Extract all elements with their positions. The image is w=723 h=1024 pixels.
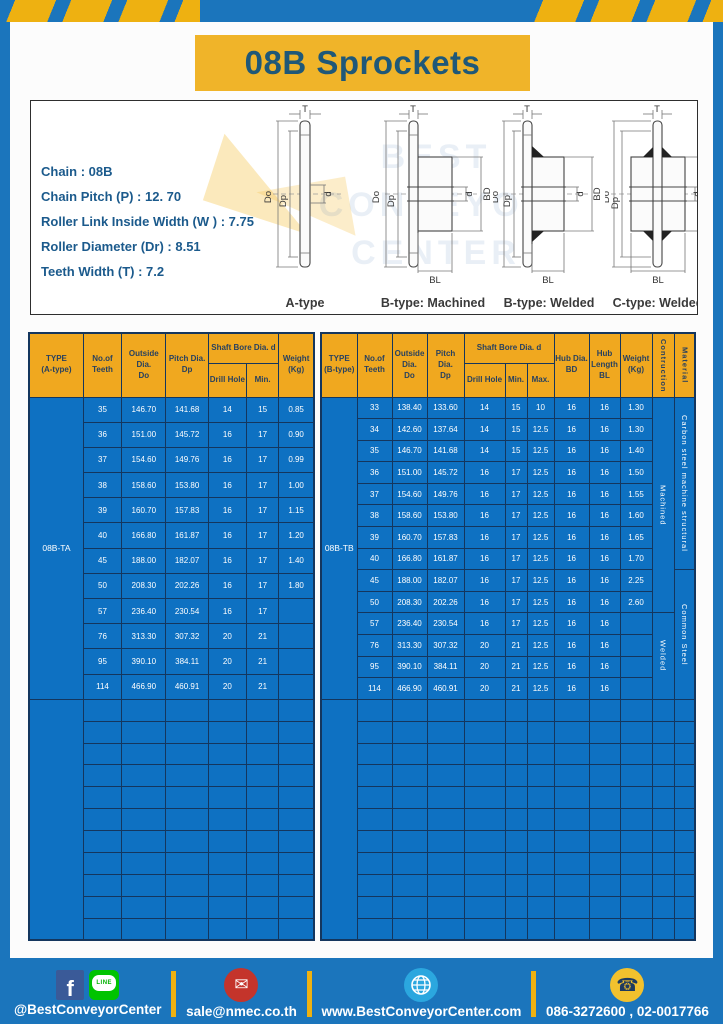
table-cell: 16: [208, 523, 246, 548]
table-cell: [464, 765, 505, 787]
spec-line-pitch: Chain Pitch (P) : 12. 70: [41, 184, 254, 209]
table-cell: 16: [464, 613, 505, 635]
svg-text:BD: BD: [482, 187, 493, 200]
table-cell: [620, 853, 652, 875]
table-cell: 17: [246, 422, 278, 447]
table-cell: 17: [246, 548, 278, 573]
table-cell: [554, 918, 589, 940]
email-icon: ✉: [224, 968, 258, 1002]
table-cell: [166, 831, 208, 853]
table-cell: 236.40: [392, 613, 427, 635]
col-header-type-a: TYPE (A-type): [29, 333, 83, 397]
table-cell: 17: [505, 527, 527, 549]
svg-text:Dp: Dp: [502, 195, 513, 207]
table-cell: 17: [246, 523, 278, 548]
table-cell: 16: [464, 483, 505, 505]
table-cell: 16: [464, 505, 505, 527]
table-cell: [208, 852, 246, 874]
table-row: 34142.60137.64141512.516161.30: [321, 419, 695, 441]
table-cell: [427, 831, 464, 853]
table-cell: 20: [208, 674, 246, 699]
table-cell: [122, 874, 166, 896]
col-header-drill-hole: Drill Hole: [208, 363, 246, 397]
table-cell: 16: [554, 591, 589, 613]
table-cell: 40: [357, 548, 392, 570]
col-header-material: Material: [674, 333, 695, 397]
table-cell: 16: [554, 570, 589, 592]
table-cell: [392, 721, 427, 743]
table-cell: [122, 721, 166, 743]
table-cell: [122, 918, 166, 940]
sprocket-b-machined-drawing: T Do Dp d BD BL: [369, 105, 497, 287]
empty-row: [321, 918, 695, 940]
table-cell: [427, 699, 464, 721]
table-cell: [427, 918, 464, 940]
table-cell: [464, 721, 505, 743]
construction-cell: Welded: [652, 613, 674, 699]
table-cell: [166, 852, 208, 874]
table-cell: [527, 874, 554, 896]
table-cell: 33: [357, 397, 392, 419]
table-cell: [279, 699, 314, 721]
col-header-drill-hole: Drill Hole: [464, 363, 505, 397]
col-header-construction: Contruction: [652, 333, 674, 397]
table-cell: [246, 874, 278, 896]
table-cell: [554, 787, 589, 809]
table-cell: [246, 809, 278, 831]
sprocket-c-welded-drawing: T Do Dp d BD BL: [605, 105, 698, 287]
table-cell: 141.68: [427, 440, 464, 462]
table-cell: 57: [83, 599, 121, 624]
table-cell: 160.70: [392, 527, 427, 549]
globe-icon: [404, 968, 438, 1002]
table-cell: 158.60: [122, 473, 166, 498]
svg-text:BL: BL: [429, 275, 441, 286]
content-panel: 08B Sprockets BEST CONVEYOR CENTER Chain…: [10, 22, 713, 958]
table-cell: [554, 809, 589, 831]
table-cell: [392, 874, 427, 896]
table-cell: [208, 765, 246, 787]
spec-line-roller-dia: Roller Diameter (Dr) : 8.51: [41, 234, 254, 259]
table-row: 114466.90460.91202112.51616: [321, 678, 695, 700]
diagram-caption-a: A-type: [253, 296, 357, 310]
table-type-cell: [321, 699, 357, 940]
table-cell: 0.90: [279, 422, 314, 447]
table-cell: [652, 896, 674, 918]
table-cell: 151.00: [392, 462, 427, 484]
table-cell: [208, 699, 246, 721]
table-cell: 14: [464, 440, 505, 462]
table-cell: 12.5: [527, 656, 554, 678]
table-cell: [83, 721, 121, 743]
table-cell: [464, 787, 505, 809]
table-cell: 16: [208, 422, 246, 447]
table-cell: [652, 699, 674, 721]
table-cell: 1.00: [279, 473, 314, 498]
empty-row: [321, 765, 695, 787]
table-cell: 16: [554, 678, 589, 700]
table-cell: 12.5: [527, 635, 554, 657]
svg-text:d: d: [464, 191, 475, 196]
sprocket-table-a: TYPE (A-type) No.of Teeth Outside Dia. D…: [28, 332, 315, 941]
table-cell: 21: [505, 656, 527, 678]
table-cell: 16: [208, 599, 246, 624]
table-row: 36151.00145.72161712.516161.50: [321, 462, 695, 484]
table-row: 50208.30202.26161712.516162.60: [321, 591, 695, 613]
table-cell: [279, 809, 314, 831]
footer-divider: [531, 971, 536, 1017]
table-cell: [208, 743, 246, 765]
table-cell: 157.83: [166, 498, 208, 523]
table-cell: [620, 831, 652, 853]
table-cell: [620, 613, 652, 635]
table-cell: 17: [505, 548, 527, 570]
table-cell: 20: [464, 635, 505, 657]
table-cell: [208, 918, 246, 940]
table-cell: [620, 787, 652, 809]
table-cell: 182.07: [427, 570, 464, 592]
table-cell: [620, 656, 652, 678]
svg-text:d: d: [323, 191, 334, 196]
table-cell: 10: [527, 397, 554, 419]
svg-text:Do: Do: [371, 191, 382, 203]
table-cell: [246, 721, 278, 743]
title-banner: 08B Sprockets: [195, 35, 530, 91]
table-cell: 149.76: [166, 447, 208, 472]
table-cell: [122, 809, 166, 831]
spec-line-chain: Chain : 08B: [41, 159, 254, 184]
table-row: 57236.40230.54161712.51616Welded: [321, 613, 695, 635]
table-cell: [527, 743, 554, 765]
table-cell: [505, 787, 527, 809]
table-cell: 208.30: [122, 573, 166, 598]
table-cell: 21: [246, 674, 278, 699]
table-cell: 146.70: [392, 440, 427, 462]
table-cell: 21: [246, 649, 278, 674]
table-cell: [166, 699, 208, 721]
table-cell: 1.30: [620, 397, 652, 419]
table-cell: [674, 765, 695, 787]
table-cell: 45: [83, 548, 121, 573]
table-cell: [527, 721, 554, 743]
table-cell: 307.32: [427, 635, 464, 657]
table-cell: [392, 765, 427, 787]
col-header-weight: Weight (Kg): [279, 333, 314, 397]
table-cell: 15: [505, 419, 527, 441]
table-cell: 20: [208, 624, 246, 649]
svg-text:Do: Do: [263, 191, 274, 203]
table-cell: [357, 699, 392, 721]
col-header-max: Max.: [527, 363, 554, 397]
table-cell: [505, 699, 527, 721]
table-cell: [246, 699, 278, 721]
table-cell: 14: [464, 419, 505, 441]
table-cell: 16: [554, 548, 589, 570]
table-cell: [208, 787, 246, 809]
table-cell: 15: [505, 397, 527, 419]
footer-website-text: www.BestConveyorCenter.com: [322, 1004, 522, 1019]
table-cell: [620, 809, 652, 831]
footer-divider: [171, 971, 176, 1017]
empty-row: [321, 874, 695, 896]
table-cell: [554, 896, 589, 918]
table-cell: 142.60: [392, 419, 427, 441]
empty-row: [321, 809, 695, 831]
footer-social-handle: @BestConveyorCenter: [14, 1002, 161, 1017]
table-cell: [122, 852, 166, 874]
table-cell: [527, 853, 554, 875]
footer-phone-text: 086-3272600 , 02-0017766: [546, 1004, 709, 1019]
svg-text:BD: BD: [592, 187, 603, 200]
table-cell: [554, 699, 589, 721]
table-cell: 313.30: [392, 635, 427, 657]
table-cell: [674, 874, 695, 896]
table-cell: [554, 874, 589, 896]
table-cell: [279, 896, 314, 918]
table-cell: [464, 874, 505, 896]
table-cell: [83, 918, 121, 940]
table-cell: [279, 852, 314, 874]
table-cell: [166, 809, 208, 831]
table-cell: [464, 896, 505, 918]
material-cell: Common Steel: [674, 570, 695, 700]
table-cell: 12.5: [527, 440, 554, 462]
table-cell: 0.85: [279, 397, 314, 422]
table-cell: 12.5: [527, 462, 554, 484]
table-cell: [208, 721, 246, 743]
table-cell: [279, 721, 314, 743]
table-cell: [620, 635, 652, 657]
table-cell: 390.10: [122, 649, 166, 674]
empty-row: [321, 787, 695, 809]
table-row: 40166.80161.87161712.516161.70: [321, 548, 695, 570]
spec-line-roller-width: Roller Link Inside Width (W ) : 7.75: [41, 209, 254, 234]
table-cell: [620, 896, 652, 918]
table-cell: [652, 918, 674, 940]
table-cell: [620, 874, 652, 896]
table-cell: [83, 852, 121, 874]
table-cell: 16: [208, 498, 246, 523]
table-cell: [392, 743, 427, 765]
table-cell: 17: [246, 599, 278, 624]
table-cell: [652, 765, 674, 787]
table-cell: [620, 743, 652, 765]
empty-row: [321, 743, 695, 765]
table-cell: [505, 853, 527, 875]
table-cell: [246, 765, 278, 787]
col-header-outside-dia: Outside Dia. Do: [122, 333, 166, 397]
table-cell: 16: [554, 656, 589, 678]
svg-text:BL: BL: [542, 275, 554, 286]
col-header-type-b: TYPE (B-type): [321, 333, 357, 397]
table-cell: 16: [589, 635, 620, 657]
table-cell: [122, 765, 166, 787]
table-cell: 161.87: [166, 523, 208, 548]
chain-spec-block: Chain : 08B Chain Pitch (P) : 12. 70 Rol…: [41, 159, 254, 284]
table-cell: [166, 874, 208, 896]
table-cell: [427, 765, 464, 787]
table-cell: 466.90: [392, 678, 427, 700]
table-cell: [357, 765, 392, 787]
table-cell: [427, 809, 464, 831]
empty-row: [321, 721, 695, 743]
table-cell: 154.60: [392, 483, 427, 505]
table-cell: [652, 809, 674, 831]
table-cell: 16: [554, 613, 589, 635]
table-cell: [122, 699, 166, 721]
table-cell: 2.25: [620, 570, 652, 592]
diagram-caption-b-machined: B-type: Machined: [369, 296, 497, 310]
table-cell: 16: [208, 573, 246, 598]
table-row: 37154.60149.76161712.516161.55: [321, 483, 695, 505]
facebook-icon: f: [56, 970, 84, 1000]
svg-text:Dp: Dp: [610, 197, 621, 209]
table-cell: [674, 918, 695, 940]
table-cell: 16: [554, 635, 589, 657]
col-header-min: Min.: [505, 363, 527, 397]
diagram-b-welded: T Do Dp d BD BL B-type: Welded: [493, 105, 605, 312]
table-cell: [505, 743, 527, 765]
table-cell: 16: [589, 570, 620, 592]
table-row: 08B-TB33138.40133.6014151016161.30Machin…: [321, 397, 695, 419]
footer-website: www.BestConveyorCenter.com: [322, 968, 522, 1019]
table-cell: [427, 853, 464, 875]
table-cell: 17: [505, 505, 527, 527]
table-cell: [554, 765, 589, 787]
table-cell: [83, 765, 121, 787]
footer-divider: [307, 971, 312, 1017]
table-cell: 40: [83, 523, 121, 548]
table-cell: 76: [83, 624, 121, 649]
table-row: 38158.60153.80161712.516161.60: [321, 505, 695, 527]
table-cell: 1.40: [620, 440, 652, 462]
table-cell: [246, 743, 278, 765]
table-row: 95390.10384.11202112.51616: [321, 656, 695, 678]
table-cell: 1.30: [620, 419, 652, 441]
table-cell: [83, 809, 121, 831]
empty-row: [321, 699, 695, 721]
table-cell: 16: [554, 505, 589, 527]
table-cell: 1.60: [620, 505, 652, 527]
table-cell: 12.5: [527, 591, 554, 613]
table-cell: [392, 853, 427, 875]
empty-row: [321, 853, 695, 875]
col-header-pitch-dia: Pitch Dia. Dp: [166, 333, 208, 397]
table-cell: 17: [246, 573, 278, 598]
table-cell: [166, 743, 208, 765]
table-cell: [464, 809, 505, 831]
table-cell: 21: [246, 624, 278, 649]
table-cell: 460.91: [427, 678, 464, 700]
table-cell: 1.70: [620, 548, 652, 570]
table-cell: 188.00: [392, 570, 427, 592]
table-cell: 16: [464, 548, 505, 570]
table-cell: 20: [464, 678, 505, 700]
table-type-cell: 08B-TB: [321, 397, 357, 699]
table-cell: 153.80: [166, 473, 208, 498]
table-cell: 36: [83, 422, 121, 447]
table-cell: [279, 743, 314, 765]
table-cell: [427, 787, 464, 809]
table-cell: 160.70: [122, 498, 166, 523]
svg-text:d: d: [692, 191, 698, 196]
table-cell: 16: [554, 483, 589, 505]
table-cell: 17: [505, 591, 527, 613]
table-cell: [464, 699, 505, 721]
table-cell: 16: [589, 462, 620, 484]
table-cell: [166, 896, 208, 918]
svg-text:d: d: [575, 191, 586, 196]
table-cell: [246, 787, 278, 809]
table-cell: 182.07: [166, 548, 208, 573]
col-header-shaft-bore: Shaft Bore Dia. d: [208, 333, 279, 363]
table-cell: 0.99: [279, 447, 314, 472]
table-cell: 12.5: [527, 548, 554, 570]
table-cell: 38: [83, 473, 121, 498]
sprocket-table-b: TYPE (B-type) No.of Teeth Outside Dia. D…: [320, 332, 696, 941]
table-cell: [589, 699, 620, 721]
table-cell: 12.5: [527, 527, 554, 549]
table-cell: 38: [357, 505, 392, 527]
table-cell: [427, 721, 464, 743]
table-cell: [527, 787, 554, 809]
table-cell: 16: [464, 462, 505, 484]
table-cell: 146.70: [122, 397, 166, 422]
table-cell: [392, 809, 427, 831]
table-cell: [392, 918, 427, 940]
table-cell: 21: [505, 678, 527, 700]
table-cell: 16: [464, 591, 505, 613]
table-cell: [652, 831, 674, 853]
footer-email-text: sale@nmec.co.th: [186, 1004, 297, 1019]
table-cell: [357, 896, 392, 918]
table-cell: 390.10: [392, 656, 427, 678]
table-cell: 1.55: [620, 483, 652, 505]
table-cell: [674, 699, 695, 721]
table-cell: 17: [505, 483, 527, 505]
hazard-stripe-left: [0, 0, 200, 22]
table-cell: 12.5: [527, 570, 554, 592]
table-cell: [83, 787, 121, 809]
table-cell: 16: [589, 678, 620, 700]
table-cell: [464, 743, 505, 765]
table-cell: [674, 853, 695, 875]
table-cell: [652, 787, 674, 809]
col-header-teeth: No.of Teeth: [83, 333, 121, 397]
table-cell: 76: [357, 635, 392, 657]
table-cell: 36: [357, 462, 392, 484]
svg-text:Dp: Dp: [386, 195, 397, 207]
table-cell: 114: [83, 674, 121, 699]
table-b-body: 08B-TB33138.40133.6014151016161.30Machin…: [321, 397, 695, 940]
table-cell: [554, 743, 589, 765]
table-cell: 114: [357, 678, 392, 700]
construction-cell: Machined: [652, 397, 674, 613]
table-cell: [392, 896, 427, 918]
svg-text:T: T: [410, 105, 416, 115]
table-cell: [122, 831, 166, 853]
line-icon: LINE: [89, 970, 119, 1000]
diagram-box: BEST CONVEYOR CENTER Chain : 08B Chain P…: [30, 100, 698, 315]
table-cell: 39: [83, 498, 121, 523]
page-title: 08B Sprockets: [245, 44, 481, 82]
table-cell: 466.90: [122, 674, 166, 699]
col-header-weight: Weight (Kg): [620, 333, 652, 397]
table-cell: [674, 896, 695, 918]
table-cell: [505, 809, 527, 831]
table-cell: [589, 831, 620, 853]
table-cell: 37: [357, 483, 392, 505]
